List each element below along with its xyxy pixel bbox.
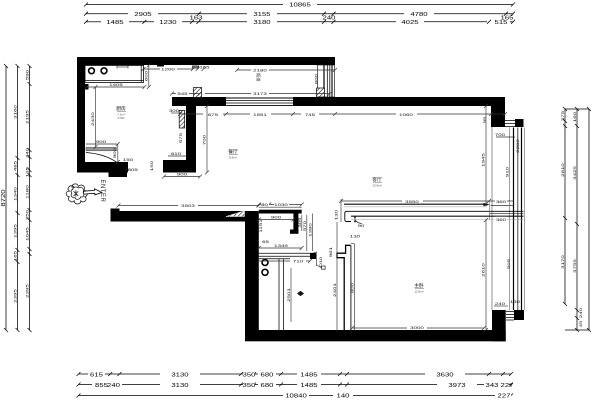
svg-text:1060: 1060 bbox=[399, 112, 414, 117]
svg-text:163: 163 bbox=[190, 16, 203, 22]
svg-text:主卧: 主卧 bbox=[414, 282, 424, 289]
svg-text:烟道: 烟道 bbox=[255, 73, 262, 82]
svg-text:350: 350 bbox=[243, 383, 256, 389]
svg-text:10865: 10865 bbox=[289, 3, 311, 9]
svg-text:680: 680 bbox=[261, 373, 274, 379]
svg-text:300: 300 bbox=[169, 108, 180, 113]
svg-text:3130: 3130 bbox=[171, 383, 188, 389]
svg-text:1349: 1349 bbox=[274, 243, 289, 248]
svg-text:1340: 1340 bbox=[13, 186, 18, 201]
svg-text:360: 360 bbox=[496, 217, 507, 222]
svg-text:3630: 3630 bbox=[436, 373, 453, 379]
svg-text:2195: 2195 bbox=[25, 109, 30, 124]
svg-text:2395: 2395 bbox=[13, 288, 18, 303]
svg-text:855: 855 bbox=[95, 383, 108, 389]
svg-text:610: 610 bbox=[171, 151, 182, 156]
svg-text:135: 135 bbox=[25, 166, 30, 177]
svg-text:1380: 1380 bbox=[308, 222, 313, 237]
svg-text:1485: 1485 bbox=[300, 383, 317, 389]
svg-text:910: 910 bbox=[505, 166, 510, 177]
svg-text:545: 545 bbox=[177, 91, 188, 96]
svg-text:165: 165 bbox=[199, 65, 210, 70]
svg-text:615: 615 bbox=[90, 373, 103, 379]
svg-text:ENTER: ENTER bbox=[99, 180, 105, 203]
svg-text:3425: 3425 bbox=[572, 165, 577, 180]
svg-text:900: 900 bbox=[177, 171, 188, 176]
svg-text:2700: 2700 bbox=[118, 116, 125, 120]
svg-text:3170: 3170 bbox=[560, 254, 565, 269]
svg-text:2610: 2610 bbox=[481, 262, 486, 277]
svg-text:1395: 1395 bbox=[13, 223, 18, 238]
svg-text:2180: 2180 bbox=[253, 68, 268, 73]
svg-text:3973: 3973 bbox=[448, 383, 465, 389]
svg-text:餐厅: 餐厅 bbox=[228, 148, 238, 155]
svg-text:343: 343 bbox=[486, 383, 499, 389]
svg-text:710: 710 bbox=[293, 259, 304, 264]
svg-text:3755: 3755 bbox=[572, 258, 577, 273]
svg-text:8720: 8720 bbox=[1, 189, 7, 206]
svg-text:515: 515 bbox=[495, 20, 508, 26]
svg-text:1180: 1180 bbox=[25, 184, 30, 199]
svg-text:900: 900 bbox=[96, 139, 107, 144]
svg-text:240: 240 bbox=[25, 147, 30, 158]
svg-text:227: 227 bbox=[501, 383, 514, 389]
svg-text:3180: 3180 bbox=[253, 20, 270, 26]
svg-text:240: 240 bbox=[323, 16, 336, 22]
svg-text:505: 505 bbox=[506, 258, 511, 269]
svg-text:130: 130 bbox=[334, 209, 339, 220]
svg-text:375: 375 bbox=[560, 110, 565, 121]
svg-text:10840: 10840 bbox=[285, 394, 307, 400]
svg-text:745: 745 bbox=[305, 112, 316, 117]
svg-text:350: 350 bbox=[243, 373, 256, 379]
svg-text:140: 140 bbox=[337, 394, 350, 400]
svg-text:800: 800 bbox=[350, 282, 355, 293]
svg-text:130: 130 bbox=[350, 234, 361, 239]
svg-text:2280: 2280 bbox=[515, 138, 520, 153]
svg-text:130: 130 bbox=[510, 299, 521, 304]
svg-text:240: 240 bbox=[495, 301, 506, 306]
svg-text:2501: 2501 bbox=[286, 287, 291, 302]
svg-text:680: 680 bbox=[261, 383, 274, 389]
svg-text:3155: 3155 bbox=[253, 12, 270, 18]
svg-text:4780: 4780 bbox=[410, 12, 427, 18]
svg-text:700: 700 bbox=[202, 134, 207, 145]
svg-text:2430: 2430 bbox=[90, 111, 95, 126]
svg-text:1485: 1485 bbox=[106, 20, 123, 26]
svg-text:8.6m²: 8.6m² bbox=[229, 156, 237, 160]
svg-text:700: 700 bbox=[495, 132, 506, 137]
svg-text:23.9m²: 23.9m² bbox=[372, 184, 381, 188]
svg-text:160: 160 bbox=[572, 111, 577, 122]
svg-text:575: 575 bbox=[178, 132, 183, 143]
svg-text:240: 240 bbox=[578, 307, 583, 318]
svg-text:165: 165 bbox=[13, 250, 18, 261]
svg-text:900: 900 bbox=[271, 214, 282, 219]
svg-text:1030: 1030 bbox=[274, 202, 289, 207]
svg-text:3160: 3160 bbox=[13, 104, 18, 119]
svg-text:3550: 3550 bbox=[405, 199, 420, 204]
svg-text:80: 80 bbox=[261, 202, 269, 207]
svg-text:961: 961 bbox=[328, 246, 333, 257]
svg-text:D10: D10 bbox=[318, 256, 323, 267]
svg-text:1230: 1230 bbox=[159, 20, 176, 26]
svg-text:360: 360 bbox=[496, 199, 507, 204]
svg-text:3000: 3000 bbox=[410, 325, 425, 330]
svg-text:4025: 4025 bbox=[401, 20, 418, 26]
svg-text:1551: 1551 bbox=[253, 112, 268, 117]
svg-text:675: 675 bbox=[208, 112, 219, 117]
svg-text:45: 45 bbox=[578, 319, 583, 327]
svg-text:3173: 3173 bbox=[253, 91, 268, 96]
svg-text:350: 350 bbox=[25, 209, 30, 220]
svg-text:150: 150 bbox=[123, 157, 134, 162]
svg-text:240: 240 bbox=[107, 383, 120, 389]
svg-text:3503: 3503 bbox=[181, 203, 196, 208]
svg-text:150: 150 bbox=[149, 160, 154, 171]
svg-text:65: 65 bbox=[262, 239, 270, 244]
svg-text:570: 570 bbox=[302, 220, 307, 231]
svg-text:1485: 1485 bbox=[300, 373, 317, 379]
svg-text:1045: 1045 bbox=[25, 226, 30, 241]
svg-text:45: 45 bbox=[312, 250, 317, 258]
svg-text:590: 590 bbox=[25, 69, 30, 80]
svg-text:90: 90 bbox=[358, 223, 366, 228]
svg-text:600: 600 bbox=[143, 70, 148, 81]
svg-text:厨房: 厨房 bbox=[116, 105, 126, 112]
svg-text:227: 227 bbox=[498, 394, 511, 400]
svg-text:800: 800 bbox=[313, 73, 318, 84]
svg-text:客厅: 客厅 bbox=[372, 176, 382, 183]
svg-text:485: 485 bbox=[13, 160, 18, 171]
svg-text:2810: 2810 bbox=[560, 162, 565, 177]
svg-text:900: 900 bbox=[112, 147, 117, 158]
svg-text:2395: 2395 bbox=[25, 283, 30, 298]
svg-text:1200: 1200 bbox=[161, 67, 176, 72]
svg-text:2401: 2401 bbox=[332, 282, 337, 297]
svg-text:12.8m²: 12.8m² bbox=[414, 290, 423, 294]
svg-text:1405: 1405 bbox=[109, 82, 124, 87]
svg-text:1945: 1945 bbox=[481, 152, 486, 167]
svg-text:2905: 2905 bbox=[134, 12, 151, 18]
svg-text:1805: 1805 bbox=[124, 167, 139, 172]
svg-text:3130: 3130 bbox=[171, 373, 188, 379]
